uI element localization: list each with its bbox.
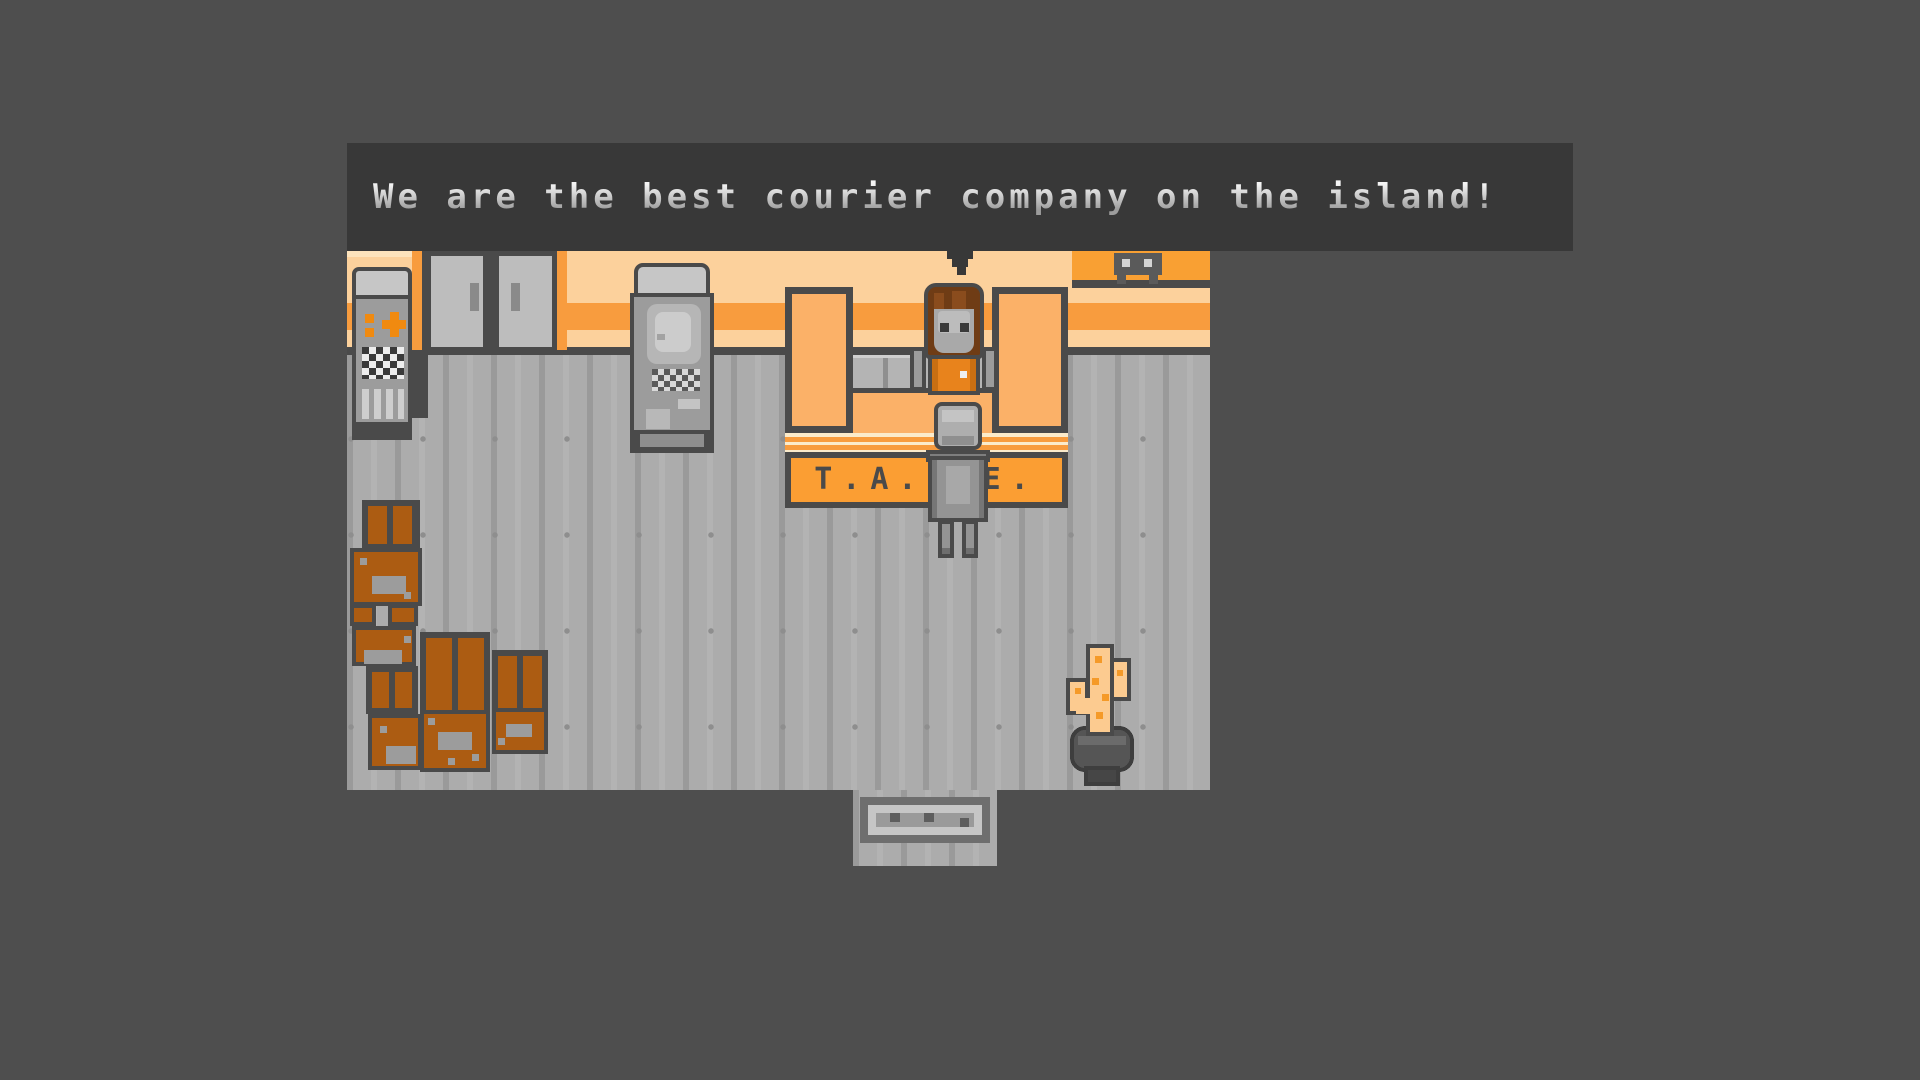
doorframe-strip-right (557, 250, 567, 350)
vending-machine-body (352, 295, 412, 426)
wall-bench (1072, 250, 1210, 288)
dialog-pointer (947, 250, 973, 259)
head-highlight (942, 410, 974, 422)
customer-leg (962, 520, 978, 558)
door-handle (511, 283, 520, 311)
ember-pixel (1117, 670, 1123, 676)
shoe (942, 548, 950, 554)
dialog-box[interactable]: We are the best courier company on the i… (347, 143, 1573, 251)
customer-leg (938, 520, 954, 558)
kiosk-body (630, 293, 714, 434)
vending-machine (352, 267, 412, 440)
dialog-text: We are the best courier company on the i… (347, 143, 1573, 251)
game-viewport: T.A.P.E. (0, 0, 1920, 1080)
doorframe-strip-left (412, 250, 422, 350)
ember-pixel (1102, 694, 1109, 701)
flame-right-arm (1112, 660, 1129, 699)
crate (350, 604, 376, 626)
double-doors (422, 250, 557, 355)
ember-pixel (1092, 678, 1099, 685)
doormat (860, 797, 990, 843)
crate-tall (420, 632, 490, 772)
bench-edge (1072, 280, 1210, 288)
door-right-panel (495, 252, 556, 351)
colon-dot-icon (365, 328, 374, 337)
dialog-pointer (957, 267, 966, 275)
eye (940, 323, 949, 332)
crate (350, 548, 422, 606)
kiosk-base (630, 430, 714, 453)
counter-left-column (785, 287, 853, 433)
kiosk-slot (678, 399, 700, 409)
receptionist-character (910, 283, 998, 395)
doorframe-post-shadow (412, 355, 428, 418)
vending-vent-bars (362, 389, 404, 419)
kiosk-keypad (652, 369, 700, 391)
kiosk-machine (630, 263, 714, 453)
campfire-art (1062, 640, 1142, 790)
crate (388, 604, 418, 626)
eye (960, 323, 969, 332)
crate (368, 714, 422, 770)
ember-pixel (1096, 712, 1103, 719)
crate (352, 626, 416, 666)
brazier-base (1086, 768, 1118, 784)
receptionist-arm (982, 347, 998, 391)
hair-strand (952, 291, 966, 309)
doormat-inner (868, 805, 982, 835)
jacket-zipper-pixel (960, 371, 967, 378)
doormat-notch (960, 818, 969, 827)
bench-radio (1114, 253, 1162, 275)
radio-knob-icon (1122, 259, 1130, 267)
crate (492, 650, 548, 754)
ember-pixel (1095, 656, 1102, 663)
customer-head (934, 402, 982, 450)
campfire (1062, 640, 1142, 790)
door-handle (470, 283, 479, 311)
jacket-shade (932, 359, 938, 391)
doormat-notch (890, 813, 900, 822)
kiosk-pedestal (640, 434, 704, 447)
crate (366, 666, 418, 714)
customer-character (926, 396, 990, 562)
head-shadow (942, 436, 974, 445)
jacket-shade (970, 359, 976, 391)
jacket-shade (932, 460, 937, 518)
kiosk-screen-mark (657, 334, 665, 340)
doormat-notch (924, 813, 934, 822)
jacket-shade (979, 460, 984, 518)
vending-display-grid (362, 347, 404, 379)
shoe (966, 548, 974, 554)
kiosk-screen (647, 304, 701, 364)
kiosk-screen-glow (655, 312, 691, 352)
vending-machine-base (352, 423, 412, 440)
colon-dot-icon (365, 314, 374, 323)
dialog-pointer (952, 259, 968, 267)
receptionist-jacket (928, 355, 980, 395)
jacket-back-panel (946, 466, 970, 504)
kiosk-sticker (646, 409, 670, 429)
ember-pixel (1075, 688, 1081, 694)
plus-icon (390, 312, 399, 337)
flame-join (1076, 698, 1096, 714)
customer-jacket (928, 456, 988, 522)
door-left-panel (427, 252, 487, 351)
counter-right-column (992, 287, 1068, 433)
crate (362, 500, 420, 550)
radio-knob-icon (1144, 259, 1152, 267)
wall-highlight (347, 250, 413, 257)
brazier-rim (1078, 736, 1126, 745)
receptionist-face (934, 309, 974, 353)
